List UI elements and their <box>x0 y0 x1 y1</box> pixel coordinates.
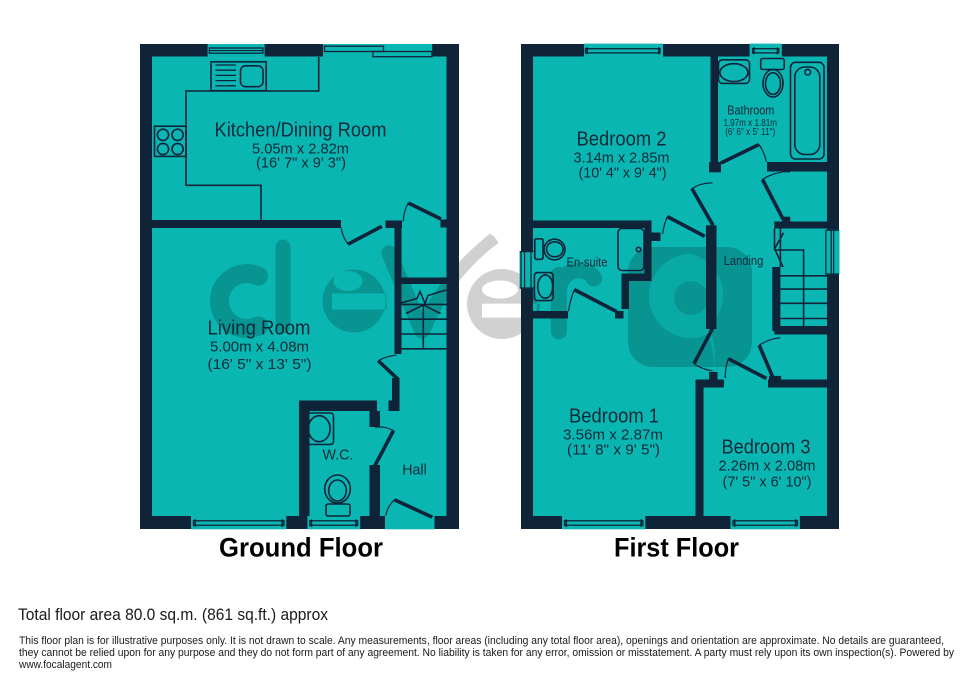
svg-text:Bedroom 1: Bedroom 1 <box>569 405 659 428</box>
svg-text:Bedroom 2: Bedroom 2 <box>577 128 667 151</box>
svg-text:W.C.: W.C. <box>323 448 354 464</box>
svg-text:(16' 7" x 9' 3"): (16' 7" x 9' 3") <box>256 155 346 172</box>
svg-text:Living Room: Living Room <box>208 317 311 340</box>
svg-text:(6' 6" x 5' 11"): (6' 6" x 5' 11") <box>725 127 775 138</box>
svg-text:Ground Floor: Ground Floor <box>219 533 383 563</box>
svg-text:they cannot be relied upon for: they cannot be relied upon for any purpo… <box>19 647 954 659</box>
svg-text:First Floor: First Floor <box>614 533 739 563</box>
svg-text:(10' 4" x 9' 4"): (10' 4" x 9' 4") <box>579 165 667 182</box>
svg-text:Bathroom: Bathroom <box>727 104 774 118</box>
svg-text:(7' 5" x 6' 10"): (7' 5" x 6' 10") <box>723 474 812 491</box>
svg-text:www.focalagent.com: www.focalagent.com <box>18 659 112 671</box>
svg-text:This floor plan is for illustr: This floor plan is for illustrative purp… <box>19 635 944 647</box>
svg-text:(11' 8" x 9' 5"): (11' 8" x 9' 5") <box>567 442 660 459</box>
svg-text:Total floor area 80.0 sq.m. (8: Total floor area 80.0 sq.m. (861 sq.ft.)… <box>18 605 329 624</box>
svg-text:En-suite: En-suite <box>567 256 608 270</box>
svg-text:Kitchen/Dining Room: Kitchen/Dining Room <box>215 119 387 142</box>
svg-text:Bedroom 3: Bedroom 3 <box>722 436 811 459</box>
svg-text:Hall: Hall <box>402 463 427 479</box>
svg-text:2.26m x 2.08m: 2.26m x 2.08m <box>719 458 816 475</box>
svg-text:(16' 5" x 13' 5"): (16' 5" x 13' 5") <box>208 356 312 373</box>
svg-text:Landing: Landing <box>724 254 764 268</box>
svg-text:5.00m x 4.08m: 5.00m x 4.08m <box>210 339 309 356</box>
